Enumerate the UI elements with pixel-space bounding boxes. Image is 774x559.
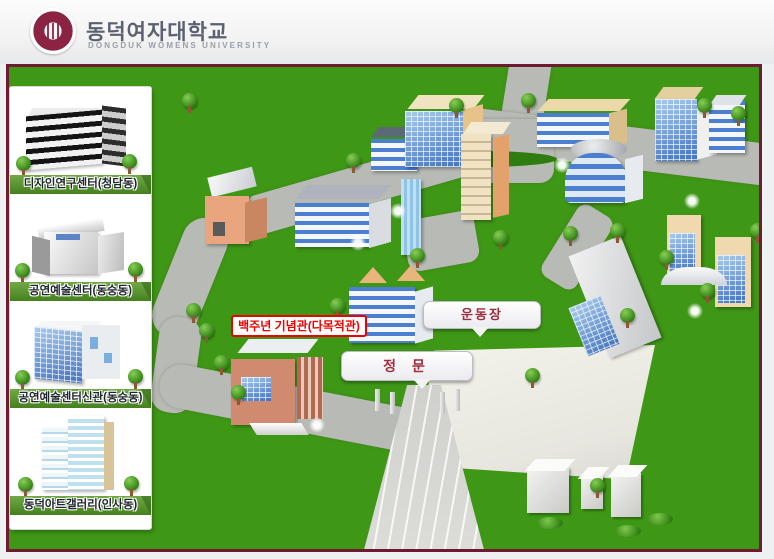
- building-photo-arts-center: [10, 194, 151, 282]
- building-factory: [295, 185, 391, 247]
- label-main-gate[interactable]: 정 문: [341, 351, 473, 381]
- building-photo-art-gallery: [10, 408, 151, 496]
- building-small-box: [611, 473, 641, 517]
- bush: [537, 517, 563, 529]
- tree: [563, 226, 578, 241]
- building-photo-design-center: [10, 87, 151, 175]
- street-lamp-glow: [390, 203, 406, 219]
- gate-pillar: [375, 389, 380, 411]
- tree: [214, 355, 229, 370]
- building-card-label[interactable]: 동덕아트갤러리(인사동): [10, 496, 151, 515]
- tree: [449, 98, 464, 113]
- tree: [521, 93, 536, 108]
- tree: [620, 308, 635, 323]
- building-photo-arts-center-new: [10, 301, 151, 389]
- bush: [615, 525, 641, 537]
- tree: [346, 153, 361, 168]
- building-card-label[interactable]: 디자인연구센터(청담동): [10, 175, 151, 194]
- tree: [182, 93, 197, 108]
- tree: [231, 385, 246, 400]
- building-tan-tall: [461, 122, 509, 220]
- tree: [186, 303, 201, 318]
- gate-pillar: [440, 392, 445, 414]
- building-small-box: [527, 467, 569, 513]
- tree: [16, 156, 31, 171]
- tree: [124, 476, 139, 491]
- gate-pillar: [455, 389, 460, 411]
- tree: [697, 98, 712, 113]
- tree: [128, 369, 143, 384]
- tree: [330, 298, 345, 313]
- building-peach-house: [205, 170, 271, 244]
- label-centennial-hall[interactable]: 백주년 기념관(다목적관): [231, 315, 367, 337]
- tree: [700, 283, 715, 298]
- tree: [18, 477, 33, 492]
- tree: [610, 223, 625, 238]
- tree: [15, 370, 30, 385]
- building-card-label[interactable]: 공연예술센터신관(동숭동): [10, 389, 151, 408]
- street-lamp-glow: [684, 193, 700, 209]
- tree: [493, 230, 508, 245]
- university-seal-icon[interactable]: [30, 8, 76, 54]
- tree: [590, 478, 605, 493]
- street-lamp-glow: [687, 303, 703, 319]
- label-playground[interactable]: 운동장: [423, 301, 541, 329]
- tree: [659, 250, 674, 265]
- building-card-arts-center[interactable]: 공연예술센터(동숭동): [10, 194, 151, 301]
- street-lamp-glow: [309, 417, 325, 433]
- building-card-art-gallery[interactable]: 동덕아트갤러리(인사동): [10, 408, 151, 515]
- university-subtitle: DONGDUK WOMENS UNIVERSITY: [88, 41, 271, 50]
- tree: [128, 262, 143, 277]
- tree: [15, 263, 30, 278]
- street-lamp-glow: [350, 235, 366, 251]
- tree: [199, 323, 214, 338]
- tree: [410, 248, 425, 263]
- building-card-label[interactable]: 공연예술센터(동숭동): [10, 282, 151, 301]
- tree: [750, 223, 762, 238]
- building-card-design-center[interactable]: 디자인연구센터(청담동): [10, 87, 151, 194]
- building-round-glass: [565, 139, 643, 203]
- bush: [647, 513, 673, 525]
- tree: [525, 368, 540, 383]
- gate-pillar: [390, 392, 395, 414]
- building-list-panel: 디자인연구센터(청담동) 공연예술센터(동숭동) 공연예술센터신관(동숭동): [10, 87, 151, 529]
- building-gray-modern: [569, 242, 669, 366]
- street-lamp-glow: [554, 157, 570, 173]
- site-header: 동덕여자대학교 DONGDUK WOMENS UNIVERSITY: [0, 0, 774, 64]
- tree: [731, 106, 746, 121]
- building-card-arts-center-new[interactable]: 공연예술센터신관(동숭동): [10, 301, 151, 408]
- building-glass-tower: [401, 179, 421, 255]
- tree: [122, 154, 137, 169]
